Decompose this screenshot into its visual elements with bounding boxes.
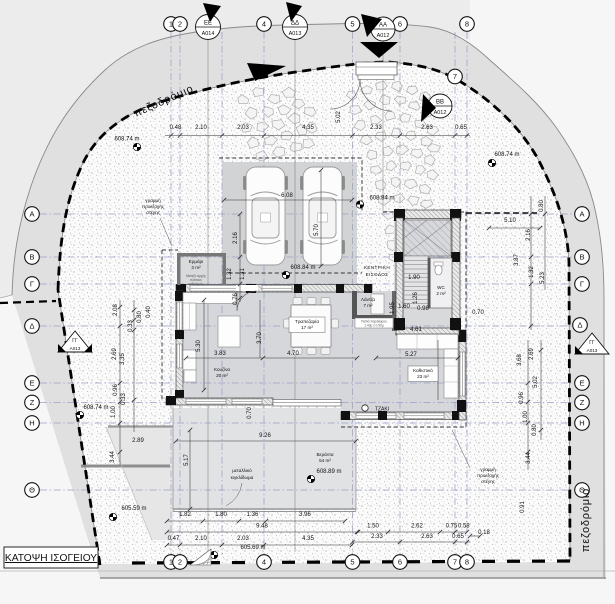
svg-text:3.68: 3.68 [517,354,523,366]
svg-text:πεζοδρόμιο: πεζοδρόμιο [580,488,592,552]
svg-text:2.63: 2.63 [421,534,433,540]
svg-text:17 m²: 17 m² [301,325,313,330]
svg-text:0.75: 0.75 [446,524,458,530]
svg-text:A013: A013 [587,348,598,353]
svg-text:5: 5 [350,558,354,567]
svg-text:2.16: 2.16 [526,229,532,241]
svg-text:6: 6 [398,558,402,567]
svg-text:3 m²: 3 m² [191,265,201,270]
svg-text:23 m²: 23 m² [417,374,429,379]
svg-text:9.48: 9.48 [256,524,268,530]
svg-text:0.80: 0.80 [539,200,545,212]
svg-text:0.70: 0.70 [247,407,253,419]
svg-text:0.65: 0.65 [455,125,467,131]
svg-text:1.40μ x 0.90μ: 1.40μ x 0.90μ [364,324,384,328]
svg-text:0.96: 0.96 [113,384,119,396]
svg-text:4.70: 4.70 [287,351,299,357]
svg-text:3.96: 3.96 [299,512,311,518]
svg-text:0.91: 0.91 [520,501,526,513]
svg-text:ΚΕΝΤΡΙΚΗ: ΚΕΝΤΡΙΚΗ [364,265,390,270]
svg-text:1.00: 1.00 [523,411,529,423]
svg-text:Z: Z [580,398,585,407]
svg-text:6: 6 [398,20,402,29]
svg-text:608.84 m: 608.84 m [290,265,315,271]
svg-text:3.70: 3.70 [257,332,263,344]
svg-text:Βεράντα: Βεράντα [316,451,333,457]
svg-text:A014: A014 [202,31,215,37]
svg-text:605.59 m: 605.59 m [121,506,146,512]
svg-text:ΚΑΤΟΨΗ ΙΣΟΓΕΙΟΥ: ΚΑΤΟΨΗ ΙΣΟΓΕΙΟΥ [5,553,97,564]
svg-text:8: 8 [465,558,469,567]
svg-text:στέγης: στέγης [481,478,496,484]
svg-text:1.95: 1.95 [390,302,396,314]
svg-text:A: A [29,210,34,219]
svg-text:2.62: 2.62 [411,524,423,530]
svg-text:ΕΙΣΟΔΟΣ: ΕΙΣΟΔΟΣ [366,272,389,277]
svg-text:4: 4 [262,20,266,29]
svg-text:2.10: 2.10 [195,125,207,131]
svg-text:3.44: 3.44 [110,451,116,463]
svg-text:4: 4 [262,558,266,567]
svg-text:9.26: 9.26 [259,433,271,439]
svg-text:608.74 m: 608.74 m [114,137,139,143]
svg-text:3.35: 3.35 [120,353,126,365]
svg-text:1.32: 1.32 [227,268,233,280]
svg-text:5.17: 5.17 [184,454,190,466]
svg-text:3.83: 3.83 [214,351,226,357]
svg-text:5.10: 5.10 [504,218,516,224]
svg-text:2: 2 [178,20,182,29]
svg-text:0.33: 0.33 [121,393,127,405]
svg-text:καθ΄ύψους: καθ΄ύψους [188,282,204,286]
svg-text:3.87: 3.87 [514,254,520,266]
svg-text:20 m²: 20 m² [216,373,228,378]
svg-text:1.90: 1.90 [408,275,420,281]
svg-text:Z: Z [30,398,35,407]
svg-text:WC: WC [437,285,445,290]
svg-text:2.89: 2.89 [132,438,144,444]
svg-text:Γ: Γ [580,280,584,289]
svg-text:608.74 m: 608.74 m [494,152,519,158]
svg-text:1.31: 1.31 [240,268,246,280]
svg-text:2.69: 2.69 [529,348,535,360]
svg-text:ΤΖΑΚΙ: ΤΖΑΚΙ [375,407,389,413]
svg-text:0.96: 0.96 [519,392,525,404]
svg-text:7: 7 [453,72,457,81]
svg-text:7: 7 [453,558,457,567]
svg-text:608.84 m: 608.84 m [369,196,394,202]
svg-text:5.27: 5.27 [405,352,417,358]
svg-text:2.33: 2.33 [371,534,383,540]
svg-text:4.35: 4.35 [302,125,314,131]
svg-text:1.80: 1.80 [215,512,227,518]
svg-text:1.00: 1.00 [111,406,117,418]
svg-text:B: B [29,253,34,262]
svg-text:1.60: 1.60 [398,304,410,310]
svg-text:2: 2 [178,558,182,567]
svg-text:0.40: 0.40 [146,306,152,318]
svg-text:1.82: 1.82 [179,512,191,518]
svg-text:Ερμάρι: Ερμάρι [189,258,204,264]
svg-text:7 m²: 7 m² [363,303,373,308]
svg-text:608.74 m: 608.74 m [83,405,108,411]
svg-text:A012: A012 [377,33,390,39]
svg-text:A013: A013 [289,31,302,37]
svg-text:8: 8 [465,20,469,29]
svg-text:0.76: 0.76 [233,293,239,305]
svg-text:Δ: Δ [29,322,34,331]
svg-text:2.63: 2.63 [421,125,433,131]
svg-text:5.23: 5.23 [540,272,546,284]
svg-text:στέγης: στέγης [146,209,161,215]
svg-text:1.50: 1.50 [367,524,379,530]
svg-text:E: E [579,379,584,388]
svg-text:605.69 m: 605.69 m [240,545,265,551]
svg-text:1.36: 1.36 [247,512,259,518]
svg-text:2.03: 2.03 [237,536,249,542]
svg-text:4.35: 4.35 [302,536,314,542]
svg-text:0.98: 0.98 [417,306,429,312]
svg-text:προεξοχής: προεξοχής [142,203,165,210]
svg-text:ΔΔ: ΔΔ [291,21,299,27]
svg-text:Λάντζα: Λάντζα [361,296,375,303]
svg-text:5.30: 5.30 [196,340,202,352]
svg-text:A: A [579,210,584,219]
svg-text:Δ: Δ [577,321,582,330]
svg-text:κιγκλίδωμα: κιγκλίδωμα [231,475,254,480]
svg-text:2 m²: 2 m² [436,291,446,296]
svg-text:0.47: 0.47 [168,536,180,542]
svg-text:2.69: 2.69 [112,348,118,360]
svg-text:0.58: 0.58 [458,524,470,530]
svg-text:AA: AA [379,23,387,29]
svg-text:Θ: Θ [29,486,35,495]
svg-text:γραμμή: γραμμή [145,197,161,203]
svg-text:1.32: 1.32 [529,266,535,278]
svg-text:5.70: 5.70 [314,224,320,236]
svg-text:0.70: 0.70 [472,310,484,316]
svg-text:2.16: 2.16 [233,232,239,244]
svg-text:5: 5 [350,20,354,29]
svg-text:5.02: 5.02 [336,111,342,123]
svg-text:2.33: 2.33 [370,125,382,131]
svg-text:2.08: 2.08 [113,304,119,316]
svg-text:0.80: 0.80 [137,311,143,323]
svg-text:ΓΓ: ΓΓ [589,340,595,346]
svg-text:0.65: 0.65 [452,534,464,540]
svg-text:μεταλλικό: μεταλλικό [232,467,252,473]
svg-text:0.18: 0.18 [478,530,490,536]
svg-text:H: H [579,419,584,428]
svg-text:2.03: 2.03 [237,125,249,131]
svg-text:BB: BB [436,100,444,106]
svg-text:4.61: 4.61 [410,327,422,333]
svg-text:H: H [29,419,34,428]
svg-text:ΓΓ: ΓΓ [72,338,78,344]
svg-text:1.26: 1.26 [413,292,419,304]
svg-text:A013: A013 [70,346,81,351]
svg-text:6.08: 6.08 [281,193,293,199]
svg-text:0.33: 0.33 [128,320,134,332]
svg-text:γραμμή: γραμμή [480,466,496,472]
svg-text:5.02: 5.02 [533,376,539,388]
svg-text:E: E [29,379,34,388]
svg-text:2.10: 2.10 [195,536,207,542]
svg-text:B: B [579,253,584,262]
svg-text:Γ: Γ [30,280,34,289]
svg-text:Καθιστικό: Καθιστικό [413,367,433,373]
svg-text:A012: A012 [434,110,447,116]
svg-text:προεξοχής: προεξοχής [477,472,500,479]
svg-text:EE: EE [204,21,212,27]
svg-text:0.48: 0.48 [170,125,182,131]
svg-text:608.89 m: 608.89 m [316,469,341,475]
svg-text:3.44: 3.44 [526,452,532,464]
svg-text:0.80: 0.80 [532,424,538,436]
svg-text:54 m²: 54 m² [319,458,331,463]
